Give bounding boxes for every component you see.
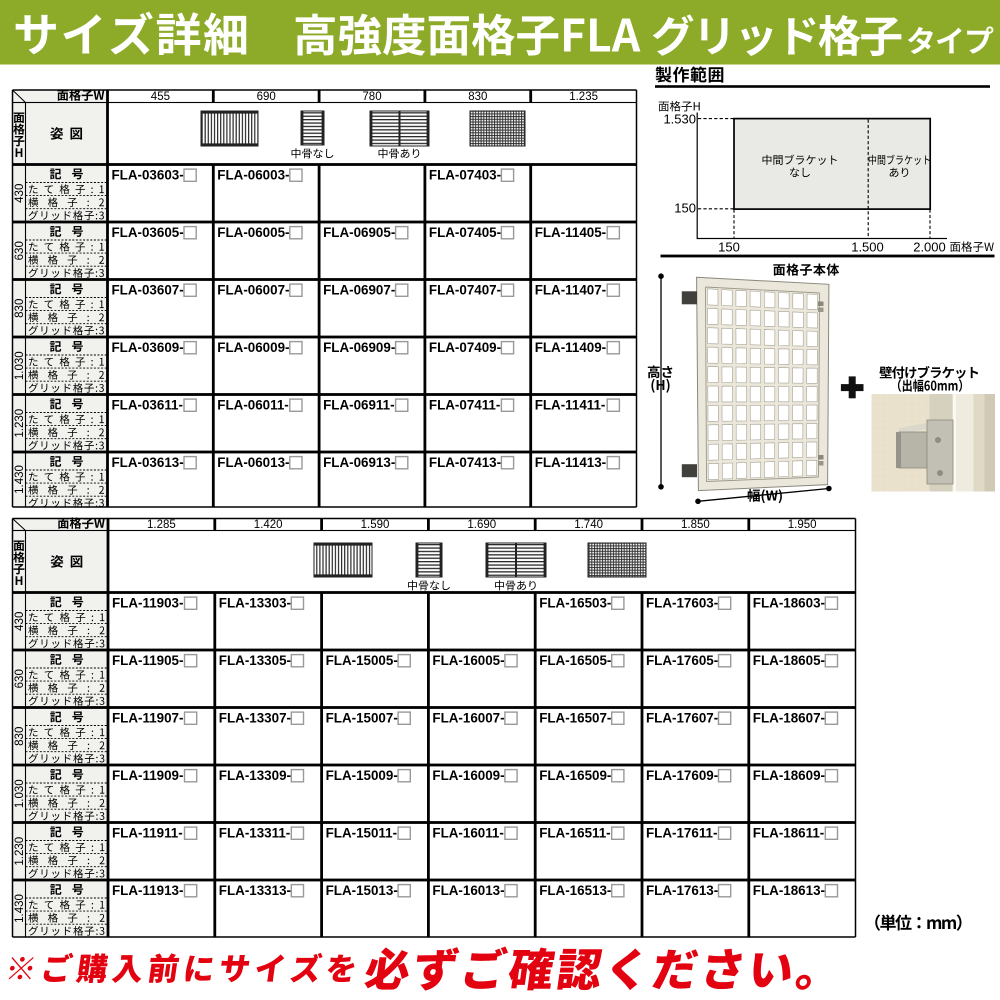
svg-text:FLA-11911-: FLA-11911- — [112, 826, 183, 841]
svg-text:FLA-16503-: FLA-16503- — [539, 596, 611, 611]
svg-text:1.850: 1.850 — [681, 519, 710, 531]
svg-text:FLA-11405-: FLA-11405- — [535, 225, 606, 240]
svg-text:FLA-06009-: FLA-06009- — [217, 340, 289, 355]
svg-text:FLA-17607-: FLA-17607- — [646, 711, 718, 726]
svg-text:FLA-07405-: FLA-07405- — [429, 225, 501, 240]
svg-text:1.500: 1.500 — [851, 240, 884, 255]
svg-text:FLA-17611-: FLA-17611- — [646, 826, 717, 841]
svg-text:455: 455 — [151, 91, 170, 103]
svg-text:830: 830 — [14, 299, 26, 318]
svg-text:FLA-15011-: FLA-15011- — [326, 826, 397, 841]
svg-text:FLA-18605-: FLA-18605- — [753, 653, 825, 668]
svg-text:FLA-03603-: FLA-03603- — [112, 168, 184, 183]
svg-text:FLA-15009-: FLA-15009- — [326, 768, 398, 783]
svg-text:FLA-11903-: FLA-11903- — [112, 596, 183, 611]
svg-text:1.530: 1.530 — [663, 112, 696, 127]
svg-text:FLA-11909-: FLA-11909- — [112, 768, 183, 783]
svg-text:FLA-16013-: FLA-16013- — [432, 883, 504, 898]
svg-text:FLA-18613-: FLA-18613- — [753, 883, 825, 898]
svg-text:FLA-16507-: FLA-16507- — [539, 711, 611, 726]
svg-text:FLA-15007-: FLA-15007- — [326, 711, 398, 726]
svg-text:1.690: 1.690 — [467, 519, 496, 531]
svg-text:FLA-15013-: FLA-15013- — [326, 883, 398, 898]
svg-text:FLA-18609-: FLA-18609- — [753, 768, 825, 783]
svg-text:FLA-11913-: FLA-11913- — [112, 883, 183, 898]
svg-text:630: 630 — [14, 241, 26, 260]
svg-text:430: 430 — [14, 184, 26, 203]
svg-text:830: 830 — [14, 727, 26, 746]
svg-text:780: 780 — [362, 91, 381, 103]
svg-text:150: 150 — [674, 201, 696, 216]
svg-text:FLA-13303-: FLA-13303- — [219, 596, 291, 611]
svg-text:FLA-16505-: FLA-16505- — [539, 653, 611, 668]
svg-text:1.430: 1.430 — [14, 894, 26, 923]
svg-text:2.000: 2.000 — [913, 240, 946, 255]
svg-text:FLA-07413-: FLA-07413- — [429, 455, 501, 470]
svg-text:1.420: 1.420 — [254, 519, 283, 531]
svg-text:690: 690 — [257, 91, 276, 103]
svg-text:FLA-11413-: FLA-11413- — [535, 455, 606, 470]
svg-text:FLA-15005-: FLA-15005- — [326, 653, 398, 668]
svg-text:FLA-06003-: FLA-06003- — [217, 168, 289, 183]
svg-text:FLA-16007-: FLA-16007- — [432, 711, 504, 726]
svg-text:FLA-06909-: FLA-06909- — [323, 340, 395, 355]
svg-text:FLA-06013-: FLA-06013- — [217, 455, 289, 470]
svg-text:1.030: 1.030 — [14, 779, 26, 808]
svg-text:FLA-06007-: FLA-06007- — [217, 283, 289, 298]
svg-text:1.590: 1.590 — [361, 519, 390, 531]
svg-text:FLA-17605-: FLA-17605- — [646, 653, 718, 668]
svg-text:FLA-13309-: FLA-13309- — [219, 768, 291, 783]
svg-text:1.235: 1.235 — [569, 91, 598, 103]
svg-text:FLA-16011-: FLA-16011- — [432, 826, 503, 841]
svg-text:FLA-11409-: FLA-11409- — [535, 340, 606, 355]
svg-text:FLA-18607-: FLA-18607- — [753, 711, 825, 726]
svg-text:FLA-06907-: FLA-06907- — [323, 283, 395, 298]
svg-text:1.285: 1.285 — [147, 519, 176, 531]
svg-text:630: 630 — [14, 669, 26, 688]
svg-text:FLA-11407-: FLA-11407- — [535, 283, 606, 298]
svg-text:FLA-11905-: FLA-11905- — [112, 653, 183, 668]
svg-text:FLA-18611-: FLA-18611- — [753, 826, 824, 841]
svg-text:FLA-06005-: FLA-06005- — [217, 225, 289, 240]
svg-text:1.950: 1.950 — [788, 519, 817, 531]
svg-text:FLA-11411-: FLA-11411- — [535, 398, 606, 413]
svg-text:FLA-03605-: FLA-03605- — [112, 225, 184, 240]
svg-text:FLA-13305-: FLA-13305- — [219, 653, 291, 668]
svg-text:FLA-11907-: FLA-11907- — [112, 711, 183, 726]
svg-text:FLA-16509-: FLA-16509- — [539, 768, 611, 783]
svg-text:FLA-13313-: FLA-13313- — [219, 883, 291, 898]
svg-text:FLA-06905-: FLA-06905- — [323, 225, 395, 240]
svg-text:FLA-16511-: FLA-16511- — [539, 826, 610, 841]
svg-text:FLA-06913-: FLA-06913- — [323, 455, 395, 470]
svg-text:FLA-06911-: FLA-06911- — [323, 398, 394, 413]
svg-text:FLA-17603-: FLA-17603- — [646, 596, 718, 611]
svg-text:FLA-03611-: FLA-03611- — [112, 398, 183, 413]
svg-text:FLA-07403-: FLA-07403- — [429, 168, 501, 183]
svg-text:FLA-03607-: FLA-03607- — [112, 283, 184, 298]
svg-text:430: 430 — [14, 612, 26, 631]
svg-text:FLA-16513-: FLA-16513- — [539, 883, 611, 898]
svg-text:1.230: 1.230 — [14, 837, 26, 866]
svg-text:FLA-03613-: FLA-03613- — [112, 455, 184, 470]
svg-text:FLA-07407-: FLA-07407- — [429, 283, 501, 298]
svg-text:1.230: 1.230 — [14, 409, 26, 438]
svg-text:FLA-07411-: FLA-07411- — [429, 398, 500, 413]
svg-text:FLA-07409-: FLA-07409- — [429, 340, 501, 355]
svg-text:150: 150 — [718, 240, 740, 255]
svg-text:FLA-13311-: FLA-13311- — [219, 826, 290, 841]
svg-text:FLA-06011-: FLA-06011- — [217, 398, 288, 413]
svg-text:FLA-13307-: FLA-13307- — [219, 711, 291, 726]
svg-text:1.740: 1.740 — [574, 519, 603, 531]
svg-text:1.030: 1.030 — [14, 351, 26, 380]
svg-text:1.430: 1.430 — [14, 465, 26, 494]
svg-text:FLA-16005-: FLA-16005- — [432, 653, 504, 668]
svg-text:FLA-17613-: FLA-17613- — [646, 883, 718, 898]
svg-text:FLA-17609-: FLA-17609- — [646, 768, 718, 783]
svg-text:FLA-16009-: FLA-16009- — [432, 768, 504, 783]
svg-text:FLA-03609-: FLA-03609- — [112, 340, 184, 355]
svg-text:FLA-18603-: FLA-18603- — [753, 596, 825, 611]
svg-text:830: 830 — [468, 91, 487, 103]
